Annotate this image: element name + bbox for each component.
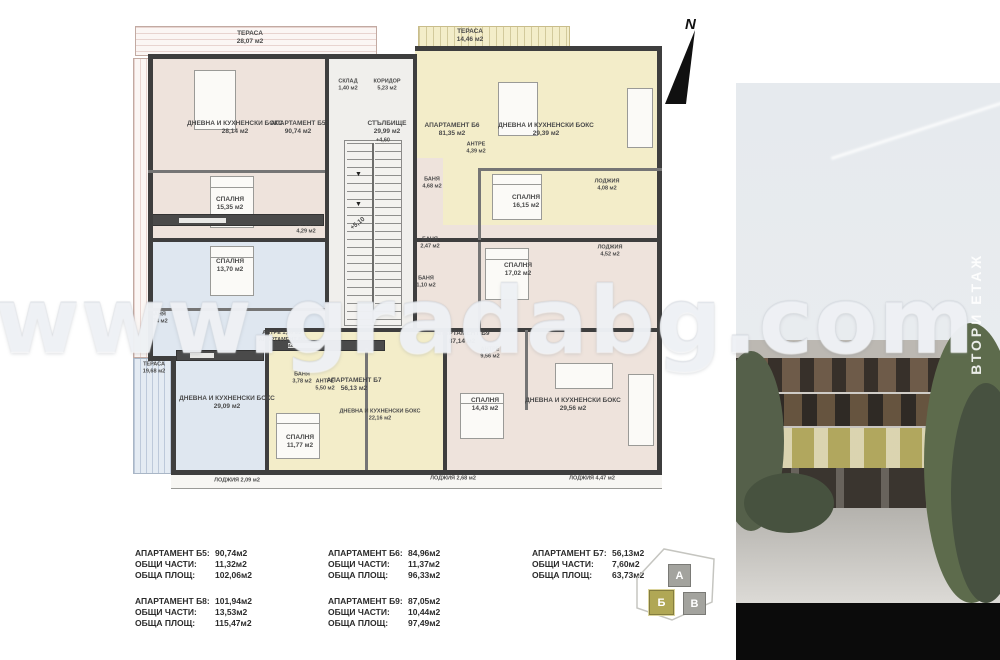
north-label: N xyxy=(685,16,696,33)
room-label-line: СПАЛНЯ xyxy=(471,397,499,405)
room-label-line: 28,14 м2 xyxy=(187,128,283,136)
room-label-line: СПАЛНЯ xyxy=(512,194,540,202)
table-value: 87,05м2 xyxy=(408,596,518,607)
room-label: БАНЯ1,10 м2 xyxy=(416,275,435,288)
room-label-line: БАНЯ xyxy=(416,275,435,282)
table-value: 96,33м2 xyxy=(408,570,518,581)
compass: N xyxy=(655,16,715,112)
table-label: ОБЩА ПЛОЩ: xyxy=(532,570,612,581)
photo-bottom-strip xyxy=(736,603,1000,660)
table-value: 84,96м2 xyxy=(408,548,518,559)
table-label: ОБЩИ ЧАСТИ: xyxy=(135,559,215,570)
building-parapet xyxy=(736,340,968,359)
room-label: ДНЕВНА И КУХНЕНСКИ БОКС22,16 м2 xyxy=(340,408,421,421)
table-row: ОБЩА ПЛОЩ:115,47м2 xyxy=(135,618,325,629)
room-label: СКЛАД1,40 м2 xyxy=(338,78,357,91)
room-label-line: БАНЯ xyxy=(296,221,315,228)
terrace xyxy=(133,358,173,474)
wall-segment xyxy=(478,168,481,240)
table-label: ОБЩА ПЛОЩ: xyxy=(135,570,215,581)
table-value: 102,06м2 xyxy=(215,570,325,581)
room-label-line: 9,56 м2 xyxy=(480,353,499,360)
room-label: ДНЕВНА И КУХНЕНСКИ БОКС29,09 м2 xyxy=(179,395,275,411)
table-label: АПАРТАМЕНТ Б7: xyxy=(532,548,612,559)
table-value: 101,94м2 xyxy=(215,596,325,607)
room-label: ТЕРАСА14,46 м2 xyxy=(457,28,484,44)
room-label-line: БАНЯ xyxy=(292,371,311,378)
room-label-line: 4,52 м2 xyxy=(598,251,623,258)
room-label-line: 11,77 м2 xyxy=(286,442,314,450)
site-block-b: Б xyxy=(649,590,674,615)
stair-stringer xyxy=(372,143,374,323)
room-label-line: СПАЛНЯ xyxy=(504,262,532,270)
table-label: ОБЩИ ЧАСТИ: xyxy=(135,607,215,618)
table-row: ОБЩИ ЧАСТИ:13,53м2 xyxy=(135,607,325,618)
apt-table: АПАРТАМЕНТ Б5:90,74м2ОБЩИ ЧАСТИ:11,32м2О… xyxy=(135,548,325,581)
room-label: ТЕРАСА19,68 м2 xyxy=(143,361,165,374)
apt-table: АПАРТАМЕНТ Б9:87,05м2ОБЩИ ЧАСТИ:10,44м2О… xyxy=(328,596,518,629)
table-label: АПАРТАМЕНТ Б6: xyxy=(328,548,408,559)
room-label: СПАЛНЯ15,35 м2 xyxy=(216,196,244,212)
site-block-v: В xyxy=(683,592,706,615)
table-label: ОБЩИ ЧАСТИ: xyxy=(532,559,612,570)
room-label-line: БАНЯ xyxy=(148,311,167,318)
room-label-line: 2,47 м2 xyxy=(420,243,439,250)
room-label: АНТРЕ9,56 м2 xyxy=(480,346,499,359)
room-label-line: 84,94 м2 xyxy=(259,343,306,350)
room-label-line: 29,09 м2 xyxy=(179,403,275,411)
brochure-page: ▼▼ТЕРАСА28,07 м2ТЕРАСА14,46 м2ТЕРАСА19,6… xyxy=(0,0,1000,660)
room-label: БАНЯ2,47 м2 xyxy=(420,236,439,249)
table-row: ОБЩИ ЧАСТИ:11,32м2 xyxy=(135,559,325,570)
room-label-line: 1,40 м2 xyxy=(338,85,357,92)
room-label-line: 17,02 м2 xyxy=(504,270,532,278)
wall-segment xyxy=(415,238,662,242)
room-label: СПАЛНЯ13,70 м2 xyxy=(216,258,244,274)
furniture-sofa xyxy=(628,374,654,446)
room-label-line: ТЕРАСА xyxy=(143,361,165,368)
room-label: БАНЯ4,68 м2 xyxy=(422,176,441,189)
stair-flight xyxy=(375,143,401,323)
staircase: ▼▼ xyxy=(344,140,402,326)
table-label: АПАРТАМЕНТ Б8: xyxy=(135,596,215,607)
room-label-line: 81,35 м2 xyxy=(425,130,480,138)
room-label: СПАЛНЯ16,15 м2 xyxy=(512,194,540,210)
furniture-sofa xyxy=(627,88,653,148)
planter-bushes xyxy=(744,473,834,533)
room-label-line: 4,08 м2 xyxy=(595,185,620,192)
table-row: АПАРТАМЕНТ Б9:87,05м2 xyxy=(328,596,518,607)
room-label-line: 90,74 м2 xyxy=(271,128,326,136)
stair-direction-arrow: ▼ xyxy=(355,171,362,178)
table-label: ОБЩА ПЛОЩ: xyxy=(328,570,408,581)
apt-table: АПАРТАМЕНТ Б6:84,96м2ОБЩИ ЧАСТИ:11,37м2О… xyxy=(328,548,518,581)
room-label: ЛОДЖИЯ4,08 м2 xyxy=(595,178,620,191)
room-label-line: ЛОДЖИЯ 2,09 м2 xyxy=(214,478,260,485)
room-label: ДНЕВНА И КУХНЕНСКИ БОКС28,14 м2 xyxy=(187,120,283,136)
room-label-line: АНТРЕ xyxy=(480,346,499,353)
room-label: КОРИДОР5,23 м2 xyxy=(373,78,400,91)
site-block-a: А xyxy=(668,564,691,587)
room-label-line: 22,16 м2 xyxy=(340,415,421,422)
wall-segment xyxy=(478,242,481,328)
table-label: ОБЩА ПЛОЩ: xyxy=(328,618,408,629)
room-label-line: ДНЕВНА И КУХНЕНСКИ БОКС xyxy=(187,120,283,128)
room-label-line: 14,46 м2 xyxy=(457,36,484,44)
wall-segment xyxy=(413,54,417,330)
room-label-line: АПАРТАМЕНТ Б9 xyxy=(435,330,490,338)
room-label: БАНЯ3,74 м2 xyxy=(148,311,167,324)
room-label: БАНЯ3,78 м2 xyxy=(292,371,311,384)
room-label-line: СПАЛНЯ xyxy=(216,258,244,266)
room-label: СПАЛНЯ14,43 м2 xyxy=(471,397,499,413)
room-label-line: ЛОДЖИЯ xyxy=(595,178,620,185)
wall-segment xyxy=(148,170,325,173)
wall-segment xyxy=(325,54,329,330)
room-label: АПАРТАМЕНТ Б590,74 м2 xyxy=(271,120,326,136)
room-label: ЛОДЖИЯ4,52 м2 xyxy=(598,244,623,257)
room-label-line: ДНЕВНА И КУХНЕНСКИ БОКС xyxy=(498,122,594,130)
table-row: ОБЩИ ЧАСТИ:10,44м2 xyxy=(328,607,518,618)
room-label-line: ДНЕВНА И КУХНЕНСКИ БОКС xyxy=(179,395,275,403)
table-value: 10,44м2 xyxy=(408,607,518,618)
room-label: АПАРТАМЕНТ Б681,35 м2 xyxy=(425,122,480,138)
room-label: ТЕРАСА28,07 м2 xyxy=(237,30,264,46)
table-row: АПАРТАМЕНТ Б8:101,94м2 xyxy=(135,596,325,607)
room-label-line: 1,10 м2 xyxy=(416,282,435,289)
room-zone xyxy=(174,358,265,470)
room-label: СПАЛНЯ17,02 м2 xyxy=(504,262,532,278)
site-diagram: А Б В xyxy=(630,546,720,624)
room-label-line: АНТРЕ 1,86 м2 xyxy=(259,330,306,337)
room-label-line: +4,60 xyxy=(376,138,390,145)
room-label-line: 3,74 м2 xyxy=(148,318,167,325)
wall-segment xyxy=(443,328,447,475)
stair-flight xyxy=(347,143,373,323)
table-row: АПАРТАМЕНТ Б5:90,74м2 xyxy=(135,548,325,559)
table-row: ОБЩА ПЛОЩ:102,06м2 xyxy=(135,570,325,581)
room-label-line: 15,35 м2 xyxy=(216,204,244,212)
room-label: АНТРЕ 1,86 м2АПАРТАМЕНТ Б884,94 м2 xyxy=(259,330,306,350)
room-label-line: 13,70 м2 xyxy=(216,266,244,274)
room-label-line: АПАРТАМЕНТ Б6 xyxy=(425,122,480,130)
table-label: ОБЩА ПЛОЩ: xyxy=(135,618,215,629)
room-label: АПАРТАМЕНТ Б987,14 м2 xyxy=(435,330,490,346)
furniture-table xyxy=(555,363,613,389)
room-label: СТЪЛБИЩЕ29,99 м2 xyxy=(367,120,406,136)
room-label-line: АНТРЕ xyxy=(466,141,485,148)
room-label-line: 87,14 м2 xyxy=(435,338,490,346)
wall-segment xyxy=(171,470,662,475)
room-label: СПАЛНЯ11,77 м2 xyxy=(286,434,314,450)
room-label: ЛОДЖИЯ 2,68 м2 xyxy=(430,476,476,483)
table-value: 115,47м2 xyxy=(215,618,325,629)
room-label-line: 3,78 м2 xyxy=(292,378,311,385)
room-label-line: СПАЛНЯ xyxy=(216,196,244,204)
room-label-line: БАНЯ xyxy=(420,236,439,243)
room-label-line: 16,15 м2 xyxy=(512,202,540,210)
table-row: ОБЩА ПЛОЩ:96,33м2 xyxy=(328,570,518,581)
room-label-line: АПАРТАМЕНТ Б8 xyxy=(259,337,306,344)
table-label: ОБЩИ ЧАСТИ: xyxy=(328,559,408,570)
table-row: ОБЩИ ЧАСТИ:11,37м2 xyxy=(328,559,518,570)
room-label-line: ЛОДЖИЯ 4,47 м2 xyxy=(569,476,615,483)
room-label-line: ТЕРАСА xyxy=(237,30,264,38)
room-label-line: 4,29 м2 xyxy=(296,228,315,235)
room-label-line: ЛОДЖИЯ 2,68 м2 xyxy=(430,476,476,483)
room-label-line: ТЕРАСА xyxy=(457,28,484,36)
wall-segment xyxy=(148,54,415,59)
room-label-line: 4,39 м2 xyxy=(466,148,485,155)
room-label: БАНЯ4,29 м2 xyxy=(296,221,315,234)
table-value: 11,32м2 xyxy=(215,559,325,570)
table-value: 13,53м2 xyxy=(215,607,325,618)
table-row: АПАРТАМЕНТ Б6:84,96м2 xyxy=(328,548,518,559)
apt-table: АПАРТАМЕНТ Б8:101,94м2ОБЩИ ЧАСТИ:13,53м2… xyxy=(135,596,325,629)
table-row: ОБЩА ПЛОЩ:97,49м2 xyxy=(328,618,518,629)
room-label-line: КОРИДОР xyxy=(373,78,400,85)
room-label-line: СКЛАД xyxy=(338,78,357,85)
room-label-line: ДНЕВНА И КУХНЕНСКИ БОКС xyxy=(525,397,621,405)
room-label-line: ДНЕВНА И КУХНЕНСКИ БОКС xyxy=(340,408,421,415)
room-label-line: 56,13 м2 xyxy=(327,385,382,393)
room-label: ДНЕВНА И КУХНЕНСКИ БОКС29,56 м2 xyxy=(525,397,621,413)
room-label-line: АПАРТАМЕНТ Б5 xyxy=(271,120,326,128)
room-label-line: 29,56 м2 xyxy=(525,405,621,413)
furniture-counter xyxy=(176,350,264,361)
room-label-line: 29,39 м2 xyxy=(498,130,594,138)
table-value: 97,49м2 xyxy=(408,618,518,629)
wall-segment xyxy=(148,238,329,242)
wall-segment xyxy=(415,46,662,51)
table-value: 90,74м2 xyxy=(215,548,325,559)
wall-segment xyxy=(148,356,176,361)
wall-segment xyxy=(478,168,662,171)
room-label-line: 5,23 м2 xyxy=(373,85,400,92)
room-label-line: СПАЛНЯ xyxy=(286,434,314,442)
room-label: ДНЕВНА И КУХНЕНСКИ БОКС29,39 м2 xyxy=(498,122,594,138)
room-label: ЛОДЖИЯ 4,47 м2 xyxy=(569,476,615,483)
room-label-line: 4,68 м2 xyxy=(422,183,441,190)
room-label: АНТРЕ4,39 м2 xyxy=(466,141,485,154)
room-label-line: СТЪЛБИЩЕ xyxy=(367,120,406,128)
room-label: АПАРТАМЕНТ Б756,13 м2 xyxy=(327,377,382,393)
floor-side-label: ВТОРИ ЕТАЖ xyxy=(968,253,984,375)
table-value: 11,37м2 xyxy=(408,559,518,570)
stair-direction-arrow: ▼ xyxy=(355,201,362,208)
room-label-line: БАНЯ xyxy=(422,176,441,183)
room-label-line: АПАРТАМЕНТ Б7 xyxy=(327,377,382,385)
room-label: +4,60 xyxy=(376,138,390,145)
building-photo: ВТОРИ ЕТАЖ xyxy=(736,83,1000,660)
room-label-line: 28,07 м2 xyxy=(237,38,264,46)
table-label: АПАРТАМЕНТ Б5: xyxy=(135,548,215,559)
floor-plan: ▼▼ТЕРАСА28,07 м2ТЕРАСА14,46 м2ТЕРАСА19,6… xyxy=(130,18,692,520)
room-label-line: 29,99 м2 xyxy=(367,128,406,136)
room-label-line: 19,68 м2 xyxy=(143,368,165,375)
wall-segment xyxy=(171,356,176,475)
wall-segment xyxy=(148,308,325,311)
room-label-line: 14,43 м2 xyxy=(471,405,499,413)
table-label: АПАРТАМЕНТ Б9: xyxy=(328,596,408,607)
room-label-line: ЛОДЖИЯ xyxy=(598,244,623,251)
room-label: ЛОДЖИЯ 2,09 м2 xyxy=(214,478,260,485)
table-label: ОБЩИ ЧАСТИ: xyxy=(328,607,408,618)
